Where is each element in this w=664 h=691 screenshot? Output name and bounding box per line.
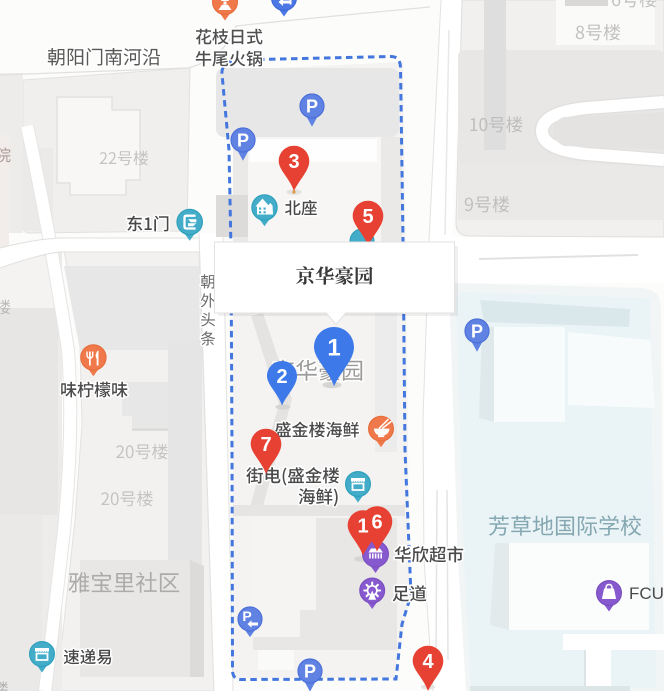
svg-text:P: P xyxy=(306,96,318,116)
svg-text:3: 3 xyxy=(288,151,299,173)
svg-text:P: P xyxy=(471,321,483,341)
svg-text:2: 2 xyxy=(276,366,287,388)
svg-text:1: 1 xyxy=(357,516,368,538)
svg-text:1: 1 xyxy=(327,335,340,362)
svg-text:6: 6 xyxy=(371,512,382,534)
svg-text:P: P xyxy=(237,130,249,150)
svg-text:FCUH: FCUH xyxy=(629,584,664,603)
svg-text:7: 7 xyxy=(260,434,271,456)
svg-text:P: P xyxy=(304,661,316,681)
svg-text:5: 5 xyxy=(362,206,373,228)
svg-text:4: 4 xyxy=(422,651,434,673)
